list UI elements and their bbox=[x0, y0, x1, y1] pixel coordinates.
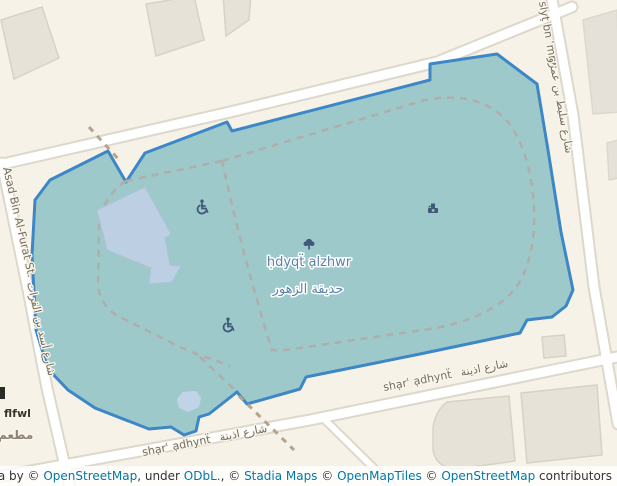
attribution-text: contributors bbox=[535, 469, 612, 483]
building bbox=[521, 385, 602, 463]
openmaptiles-link[interactable]: OpenMapTiles bbox=[337, 469, 422, 483]
attribution-text: Data by © bbox=[0, 469, 43, 483]
attribution-bar: Leaflet | Data by © OpenStreetMap, under… bbox=[0, 466, 617, 486]
odbl-link[interactable]: ODbL. bbox=[184, 469, 221, 483]
building bbox=[542, 335, 566, 358]
attribution-text: , under bbox=[137, 469, 184, 483]
map-viewport[interactable]: ḥdyqẗ ạlzhwr حديقة الزهور Asad Bin Al-Fu… bbox=[0, 0, 617, 486]
clipped-label-block bbox=[0, 387, 5, 399]
openstreetmap-link[interactable]: OpenStreetMap bbox=[43, 469, 137, 483]
attribution-text: © bbox=[422, 469, 442, 483]
poi-label-flfwl-ar: مطعم bbox=[0, 428, 33, 442]
openstreetmap-contributors-link[interactable]: OpenStreetMap bbox=[441, 469, 535, 483]
attribution-text: , © bbox=[221, 469, 244, 483]
map-canvas: ḥdyqẗ ạlzhwr حديقة الزهور Asad Bin Al-Fu… bbox=[0, 0, 617, 486]
stadia-maps-link[interactable]: Stadia Maps bbox=[244, 469, 317, 483]
building bbox=[433, 396, 515, 469]
poi-label-flfwl: flfwl bbox=[4, 407, 31, 420]
park-name-arabic: حديقة الزهور bbox=[272, 282, 344, 297]
building bbox=[607, 140, 617, 180]
park-name-translit: ḥdyqẗ ạlzhwr bbox=[267, 254, 352, 270]
attribution-text: © bbox=[317, 469, 337, 483]
